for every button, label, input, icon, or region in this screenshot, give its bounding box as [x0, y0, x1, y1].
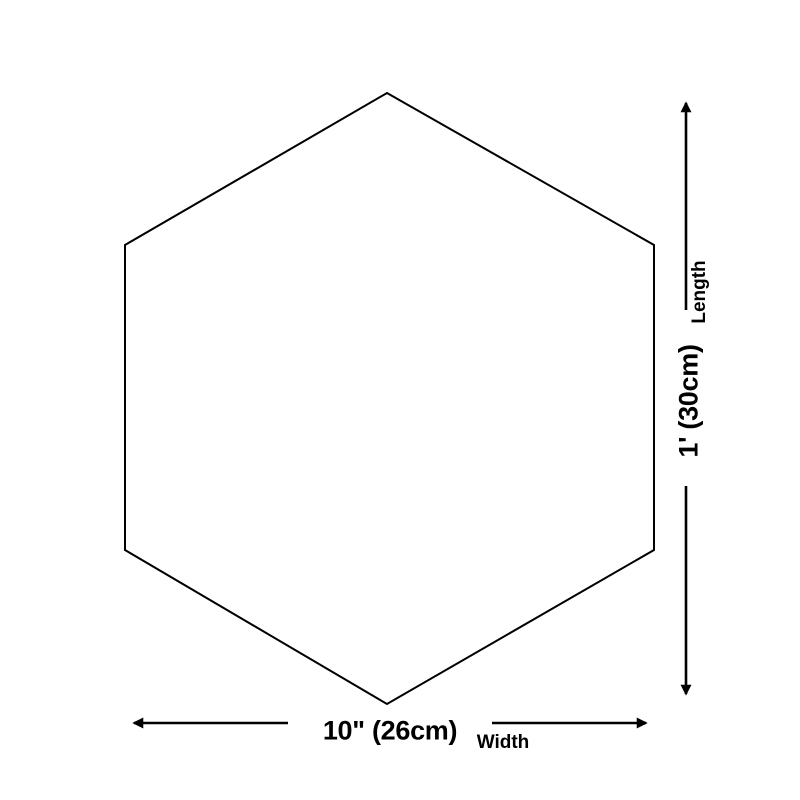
length-axis-label: Length	[689, 260, 711, 323]
dimension-diagram: Length 1' (30cm) 10" (26cm) Width	[0, 0, 800, 800]
hexagon-outline	[125, 93, 654, 704]
length-dimension-value: 1' (30cm)	[674, 344, 705, 457]
width-dimension-value: 10" (26cm)	[323, 716, 457, 747]
width-axis-label: Width	[477, 732, 530, 754]
